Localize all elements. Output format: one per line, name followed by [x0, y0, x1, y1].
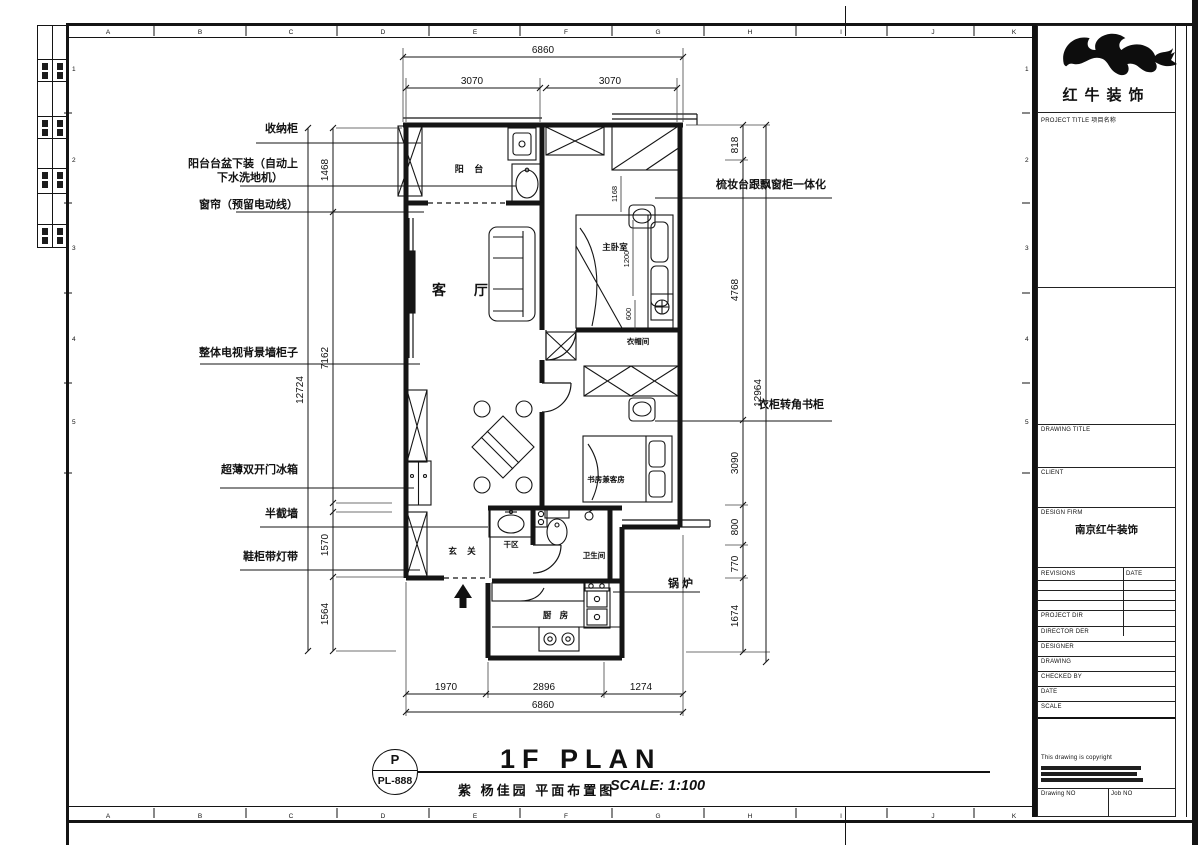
plan-scale: SCALE: 1:100 — [610, 778, 705, 794]
director-cell: DIRECTOR DER — [1038, 627, 1175, 642]
drawing-no-label: Drawing NO — [1041, 791, 1076, 797]
room-dry-area: 干区 — [504, 540, 519, 549]
client-label: CLIENT — [1041, 470, 1064, 476]
svg-text:H: H — [748, 29, 753, 36]
svg-text:4768: 4768 — [730, 278, 741, 301]
redbull-logo-icon — [1038, 28, 1177, 84]
svg-text:H: H — [748, 813, 753, 820]
label-basin-2: 下水洗地机） — [217, 170, 283, 184]
revision-row — [1038, 601, 1175, 611]
room-study: 书房兼客房 — [587, 474, 625, 484]
svg-text:5: 5 — [72, 419, 76, 426]
designer-cell: DESIGNER — [1038, 642, 1175, 657]
svg-text:F: F — [564, 813, 568, 820]
svg-text:1970: 1970 — [435, 682, 458, 693]
revision-row — [1038, 591, 1175, 601]
titleblock-logo-cell: 红牛装饰 — [1038, 26, 1175, 113]
svg-text:1: 1 — [72, 66, 76, 73]
svg-text:600: 600 — [624, 308, 633, 321]
room-bath: 卫生间 — [583, 550, 606, 560]
designer-label: DESIGNER — [1041, 644, 1074, 650]
copyright-text: This drawing is copyright — [1041, 755, 1112, 761]
room-foyer: 玄 关 — [448, 546, 479, 556]
svg-text:D: D — [381, 813, 386, 820]
svg-text:4: 4 — [72, 336, 76, 343]
svg-text:C: C — [289, 813, 294, 820]
plan-subtitle: 紫 杨佳园 平面布置图 — [458, 780, 615, 799]
checked-by-label: CHECKED BY — [1041, 674, 1082, 680]
company-name: 红牛装饰 — [1038, 84, 1175, 105]
svg-text:1274: 1274 — [630, 682, 653, 693]
svg-text:A: A — [106, 813, 111, 820]
svg-text:E: E — [473, 29, 478, 36]
dining-table — [472, 401, 534, 493]
svg-text:1200: 1200 — [622, 251, 631, 268]
kitchen-counter — [492, 583, 622, 627]
label-boiler: 锅 炉 — [668, 576, 693, 590]
svg-text:J: J — [931, 813, 934, 820]
grid-letter: A — [106, 29, 111, 36]
svg-text:F: F — [564, 29, 568, 36]
plan-walls — [403, 114, 710, 658]
drawing-cell: DRAWING — [1038, 657, 1175, 672]
revisions-header: REVISIONS DATE — [1038, 568, 1175, 581]
svg-text:770: 770 — [730, 555, 741, 572]
label-basin-1: 阳台台盆下装（自动上 — [188, 156, 298, 170]
checked-by-cell: CHECKED BY — [1038, 672, 1175, 687]
room-cloak: 衣帽间 — [627, 336, 650, 346]
scale-cell: SCALE — [1038, 702, 1175, 719]
label-corner-wardrobe: 衣柜转角书柜 — [758, 397, 824, 411]
svg-text:G: G — [655, 813, 660, 820]
scale-label: SCALE — [1041, 704, 1062, 710]
drawing-sheet: A B C D E F G H I J K A B C D E F G H I … — [0, 0, 1200, 845]
titleblock: 红牛装饰 PROJECT TITLE 项目名称 DRAWING TITLE CL… — [1037, 25, 1176, 817]
room-balcony: 阳 台 — [455, 163, 488, 174]
director-label: DIRECTOR DER — [1041, 629, 1089, 635]
room-living: 客 厅 — [431, 282, 500, 298]
label-cabinet: 收纳柜 — [265, 121, 298, 135]
revision-row — [1038, 581, 1175, 591]
tv-panel — [409, 251, 415, 313]
dry-area-sink — [489, 509, 533, 537]
project-title-cell-2 — [1038, 288, 1175, 425]
sofa — [489, 227, 535, 321]
client-cell: CLIENT — [1038, 468, 1175, 508]
svg-text:I: I — [840, 813, 842, 820]
svg-text:818: 818 — [730, 136, 741, 153]
toilet — [545, 509, 569, 545]
svg-text:5: 5 — [1025, 419, 1029, 426]
svg-text:12724: 12724 — [295, 376, 306, 404]
svg-text:2: 2 — [72, 157, 76, 164]
washing-machine — [508, 128, 536, 160]
floor-plan: A B C D E F G H I J K A B C D E F G H I … — [0, 0, 1200, 845]
desk-stool — [629, 398, 655, 421]
svg-text:B: B — [198, 813, 202, 820]
svg-text:C: C — [289, 29, 294, 36]
svg-text:I: I — [840, 29, 842, 36]
copyright-cell: This drawing is copyright — [1038, 719, 1175, 789]
svg-text:6860: 6860 — [532, 700, 555, 711]
design-firm-cell: DESIGN FIRM 南京红牛装饰 — [1038, 508, 1175, 568]
revisions-label: REVISIONS — [1041, 571, 1075, 577]
label-dresser: 梳妆台跟飘窗柜一体化 — [715, 177, 826, 191]
balcony-basin — [512, 164, 542, 202]
fridge — [406, 461, 431, 505]
label-half-wall: 半截墙 — [265, 506, 298, 520]
label-tv-wall: 整体电视背景墙柜子 — [198, 345, 298, 359]
svg-text:3070: 3070 — [599, 76, 622, 87]
svg-text:B: B — [198, 29, 202, 36]
svg-text:4: 4 — [1025, 336, 1029, 343]
label-fridge: 超薄双开门冰箱 — [220, 462, 298, 476]
entry-arrow — [454, 584, 472, 608]
svg-text:K: K — [1012, 29, 1017, 36]
plan-title: 1F PLAN — [500, 744, 662, 775]
svg-text:K: K — [1012, 813, 1017, 820]
drawing-title-cell: DRAWING TITLE — [1038, 425, 1175, 468]
svg-text:1: 1 — [1025, 66, 1029, 73]
svg-text:D: D — [381, 29, 386, 36]
sheet-code: PL-888 — [373, 770, 417, 791]
label-shoe-cabinet: 鞋柜带灯带 — [243, 549, 298, 563]
dimension-lines — [305, 54, 769, 715]
project-title-cell: PROJECT TITLE 项目名称 — [1038, 113, 1175, 288]
room-kitchen: 厨 房 — [543, 610, 571, 620]
project-dir-cell: PROJECT DIR — [1038, 611, 1175, 627]
svg-text:3090: 3090 — [730, 451, 741, 474]
svg-text:E: E — [473, 813, 478, 820]
stove — [539, 627, 579, 651]
svg-text:1674: 1674 — [730, 604, 741, 627]
job-no-label: Job NO — [1111, 791, 1133, 797]
svg-text:7162: 7162 — [320, 346, 331, 369]
label-curtain: 窗帘（预留电动线） — [199, 197, 298, 211]
sheet-number-bubble: P PL-888 — [372, 749, 418, 795]
dimension-texts: 6860 3070 3070 1468 7162 1570 1564 12724… — [295, 45, 764, 711]
svg-text:2: 2 — [1025, 157, 1029, 164]
study-bed — [583, 436, 672, 502]
svg-text:1564: 1564 — [320, 602, 331, 625]
dim-top-total: 6860 — [532, 45, 555, 56]
design-firm-value: 南京红牛装饰 — [1038, 522, 1175, 537]
svg-text:800: 800 — [730, 518, 741, 535]
project-dir-label: PROJECT DIR — [1041, 613, 1083, 619]
svg-text:3070: 3070 — [461, 76, 484, 87]
date-cell: DATE — [1038, 687, 1175, 702]
room-master: 主卧室 — [602, 242, 628, 252]
design-firm-label: DESIGN FIRM — [1041, 510, 1083, 516]
drawing-label: DRAWING — [1041, 659, 1071, 665]
svg-text:G: G — [655, 29, 660, 36]
drawing-title-label: DRAWING TITLE — [1041, 427, 1090, 433]
kitchen-sink — [584, 588, 610, 628]
svg-text:3: 3 — [1025, 245, 1029, 252]
numbers-row: Drawing NO Job NO — [1038, 789, 1175, 817]
copyright-smudge — [1038, 764, 1175, 782]
sheet-letter: P — [373, 750, 417, 770]
project-title-label: PROJECT TITLE 项目名称 — [1041, 115, 1116, 124]
svg-text:2896: 2896 — [533, 682, 556, 693]
svg-text:1168: 1168 — [610, 186, 619, 202]
nightstand — [651, 294, 673, 320]
svg-text:1468: 1468 — [320, 158, 331, 181]
svg-text:3: 3 — [72, 245, 76, 252]
svg-text:1570: 1570 — [320, 533, 331, 556]
svg-text:J: J — [931, 29, 934, 36]
date-label: DATE — [1041, 689, 1057, 695]
date-col-label: DATE — [1126, 571, 1142, 577]
plan-doors — [533, 330, 576, 573]
